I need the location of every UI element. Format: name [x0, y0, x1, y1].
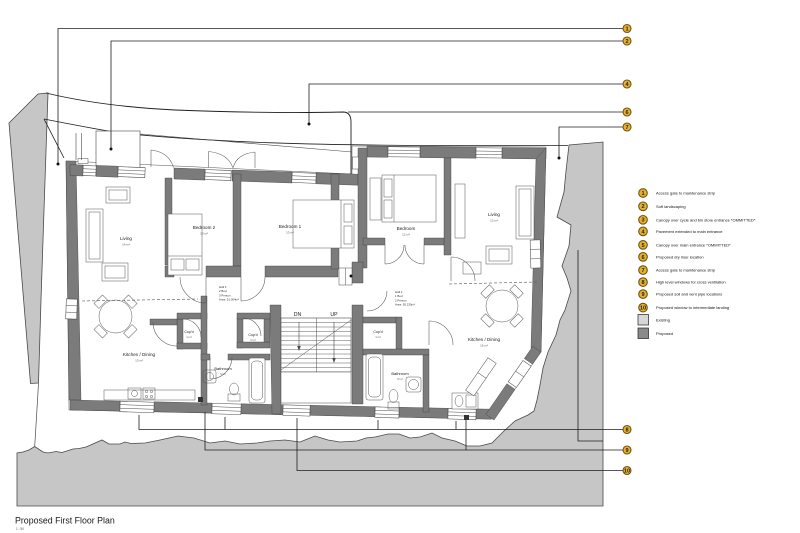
svg-text:6: 6 [641, 255, 644, 261]
svg-text:2: 2 [625, 39, 628, 45]
svg-text:DN: DN [294, 312, 302, 318]
svg-text:13 m²: 13 m² [135, 359, 143, 363]
svg-text:Bathroom: Bathroom [214, 366, 232, 371]
svg-text:Kitchen / Dining: Kitchen / Dining [123, 352, 156, 357]
svg-text:1 m²: 1 m² [375, 335, 381, 339]
svg-text:12 m²: 12 m² [402, 233, 410, 237]
svg-text:12 m²: 12 m² [490, 219, 498, 223]
svg-text:1 m²: 1 m² [250, 338, 256, 342]
svg-text:3: 3 [641, 218, 644, 224]
svg-text:13 m²: 13 m² [200, 232, 208, 236]
svg-text:Cup'd: Cup'd [184, 330, 193, 334]
svg-text:2: 2 [641, 204, 644, 210]
svg-text:Pavement extended to main entr: Pavement extended to main entrance [656, 229, 723, 234]
svg-text:8: 8 [641, 280, 644, 286]
svg-text:Area: 51.004m²: Area: 51.004m² [219, 298, 239, 302]
svg-text:Existing: Existing [656, 318, 670, 323]
svg-text:Area: 50.230m²: Area: 50.230m² [395, 303, 415, 307]
svg-text:High level windows for cross v: High level windows for cross ventilation [656, 280, 726, 285]
svg-text:5 m²: 5 m² [397, 377, 403, 381]
svg-text:Proposed: Proposed [656, 331, 673, 336]
svg-text:Living: Living [120, 236, 132, 241]
svg-text:9: 9 [625, 448, 628, 454]
svg-text:5: 5 [641, 243, 644, 249]
svg-text:7: 7 [641, 268, 644, 274]
svg-text:Proposed dry riser location: Proposed dry riser location [656, 254, 704, 259]
svg-text:Kitchen / Dining: Kitchen / Dining [468, 337, 501, 342]
svg-text:13 m²: 13 m² [286, 231, 294, 235]
svg-text:Bedroom 2: Bedroom 2 [193, 225, 216, 230]
svg-text:Proposed soil and vent pipe lo: Proposed soil and vent pipe locations [656, 292, 722, 297]
svg-text:Access gate to maintenance str: Access gate to maintenance strip [656, 268, 716, 273]
svg-text:9: 9 [641, 292, 644, 298]
svg-text:Living: Living [488, 212, 500, 217]
svg-text:Proposed First Floor Plan: Proposed First Floor Plan [15, 516, 115, 526]
svg-text:Bedroom 1: Bedroom 1 [279, 224, 302, 229]
svg-text:5 m²: 5 m² [220, 372, 226, 376]
svg-text:8: 8 [625, 427, 628, 433]
svg-text:14 m²: 14 m² [122, 243, 130, 247]
svg-text:Soft landscaping: Soft landscaping [656, 204, 686, 209]
svg-text:Bathroom: Bathroom [391, 371, 409, 376]
svg-text:Bedroom: Bedroom [397, 226, 416, 231]
svg-text:6: 6 [625, 110, 628, 116]
svg-text:1: 1 [625, 26, 628, 32]
svg-text:1 m²: 1 m² [186, 335, 192, 339]
svg-text:1 : 50: 1 : 50 [16, 527, 24, 531]
svg-text:Cup'd: Cup'd [248, 333, 257, 337]
svg-text:7: 7 [625, 125, 628, 131]
svg-text:Proposed window to intermediat: Proposed window to intermediate landing [656, 305, 729, 310]
svg-text:Access gate to maintenance str: Access gate to maintenance strip [656, 191, 716, 196]
svg-text:Canopy over cycle and bin stor: Canopy over cycle and bin store entrance… [656, 217, 756, 222]
svg-text:1: 1 [641, 191, 644, 197]
svg-text:10: 10 [640, 306, 646, 312]
svg-text:15 m²: 15 m² [480, 344, 488, 348]
svg-text:Canopy over main entrance *OMM: Canopy over main entrance *OMMITTED* [656, 242, 731, 247]
svg-text:UP: UP [330, 312, 338, 318]
svg-text:10: 10 [624, 468, 630, 474]
svg-text:Cup'd: Cup'd [373, 330, 382, 334]
